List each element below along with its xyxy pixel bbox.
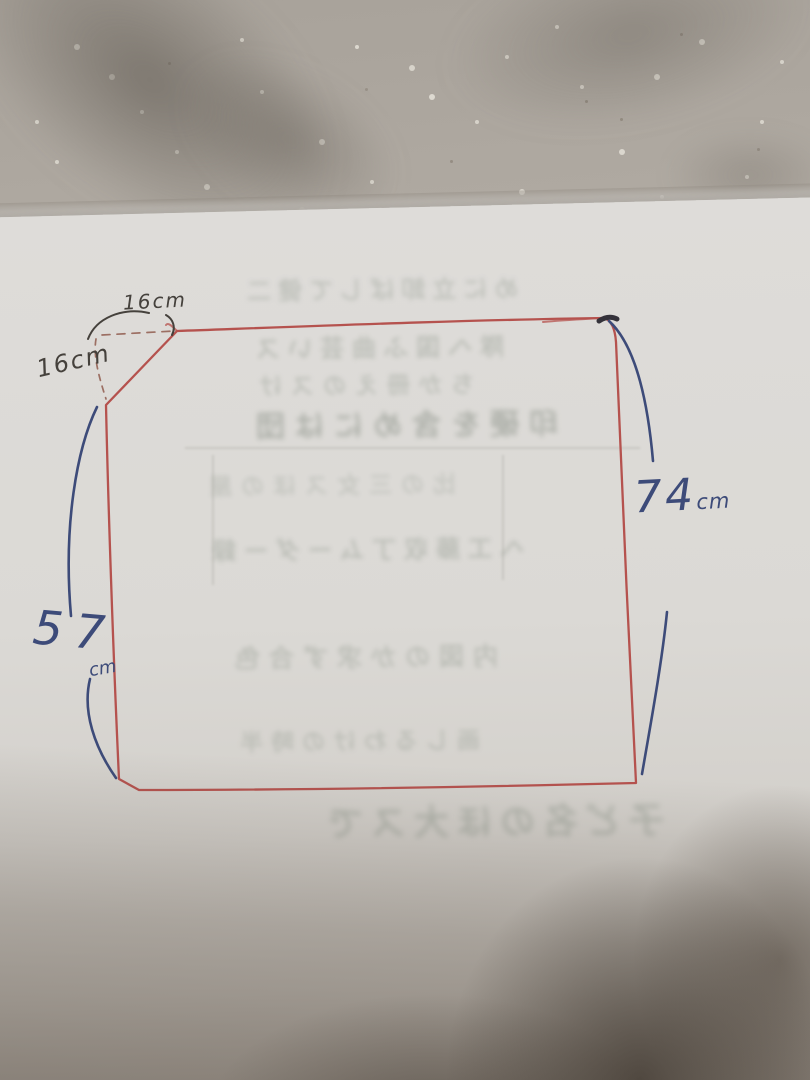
hand-drawn-figure [0, 0, 810, 1080]
label-right-side-74cm: 74cm [633, 472, 731, 521]
bracket-right-lower [642, 612, 667, 774]
measure-value: 57 [31, 600, 119, 662]
cut-corner-dashed-horizontal [102, 331, 174, 335]
label-left-side-57: 57 [31, 604, 119, 658]
corner-arc-pencil [88, 311, 174, 339]
shape-outline-red [106, 318, 636, 790]
measure-unit: cm [696, 488, 731, 514]
measure-unit: cm [152, 287, 188, 313]
label-left-side-unit: cm [88, 658, 118, 680]
photo-of-paper-diagram: めに立卸ばして健二 隊へ国ふ曲芸いス ちか冊えのスけ 印硬を含めには団 比の三女… [0, 0, 810, 1080]
bracket-left-lower [88, 679, 116, 778]
measure-value: 74 [633, 469, 698, 523]
bracket-left-upper [69, 407, 97, 616]
measure-value: 16 [122, 289, 153, 315]
label-top-cut-16cm: 16cm [123, 289, 188, 312]
